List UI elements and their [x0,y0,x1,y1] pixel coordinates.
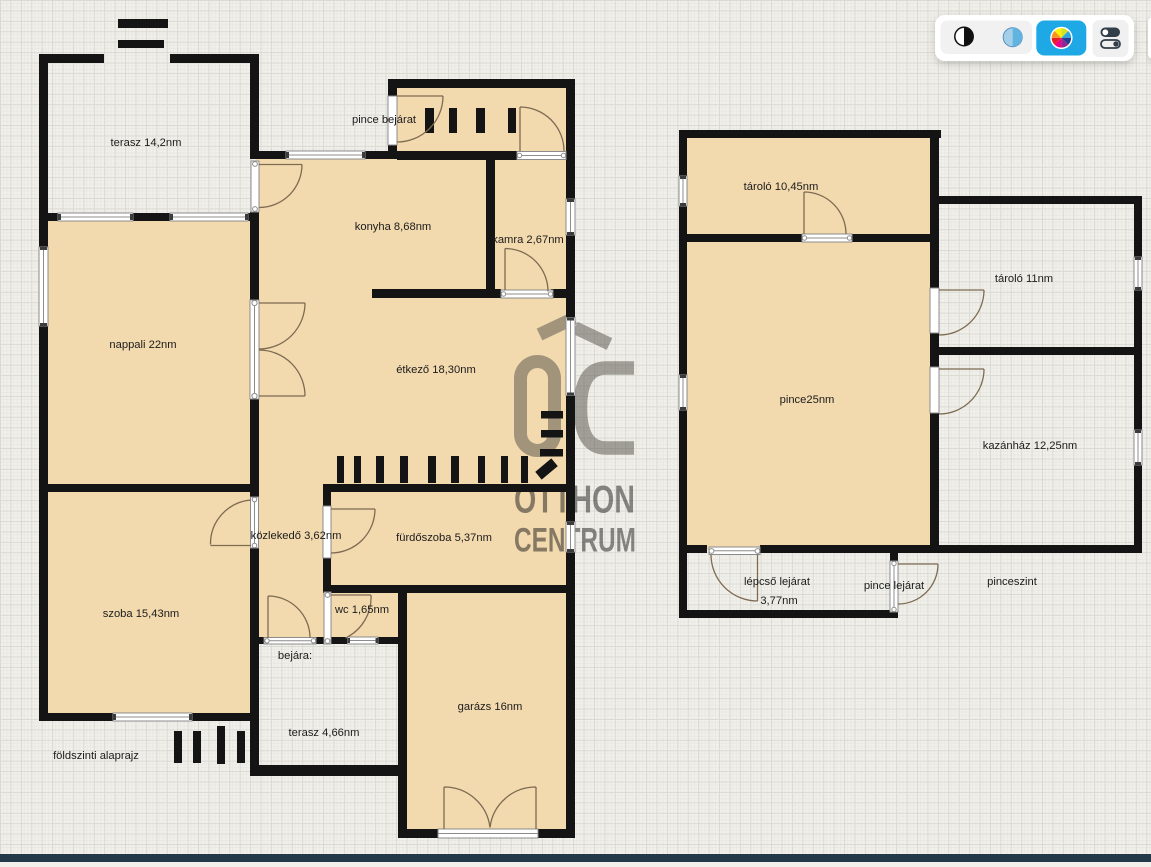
svg-text:fürdőszoba 5,37nm: fürdőszoba 5,37nm [396,532,492,544]
svg-text:közlekedő 3,62nm: közlekedő 3,62nm [251,530,342,542]
svg-text:pince bejárat: pince bejárat [352,114,417,126]
svg-text:kazánház 12,25nm: kazánház 12,25nm [983,440,1078,452]
svg-text:konyha 8,68nm: konyha 8,68nm [355,221,432,233]
svg-text:kamra 2,67nm: kamra 2,67nm [492,234,564,246]
svg-text:szoba 15,43nm: szoba 15,43nm [103,608,180,620]
svg-text:étkező 18,30nm: étkező 18,30nm [396,364,476,376]
svg-text:garázs 16nm: garázs 16nm [458,701,523,713]
svg-text:tároló 10,45nm: tároló 10,45nm [744,181,819,193]
svg-text:terasz 4,66nm: terasz 4,66nm [289,727,360,739]
svg-text:3,77nm: 3,77nm [760,595,797,607]
svg-text:bejára:: bejára: [278,650,312,662]
svg-text:tároló 11nm: tároló 11nm [995,273,1053,285]
svg-text:wc 1,65nm: wc 1,65nm [334,604,389,616]
svg-text:pince lejárat: pince lejárat [864,580,925,592]
svg-text:pinceszint: pinceszint [987,576,1038,588]
svg-text:pince25nm: pince25nm [780,394,835,406]
svg-text:lépcső lejárat: lépcső lejárat [744,576,811,588]
svg-text:nappali 22nm: nappali 22nm [109,339,176,351]
svg-text:terasz 14,2nm: terasz 14,2nm [111,137,182,149]
svg-text:földszinti alaprajz: földszinti alaprajz [53,750,139,762]
